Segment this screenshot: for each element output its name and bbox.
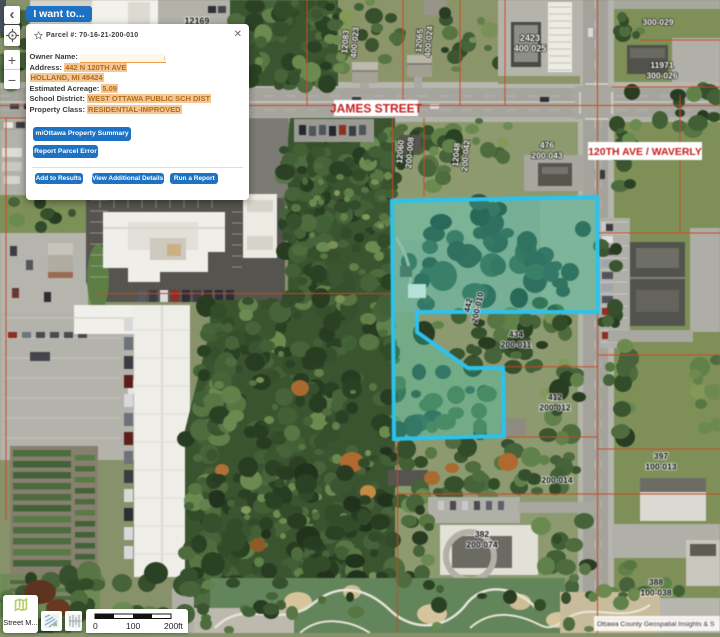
svg-text:Ottawa County Geospatial Insig: Ottawa County Geospatial Insights & S [597,621,715,628]
svg-text:412: 412 [548,392,562,402]
svg-text:11971: 11971 [650,60,673,70]
svg-text:100: 100 [126,621,140,631]
svg-text:200-011: 200-011 [501,340,532,350]
svg-text:2423: 2423 [520,33,540,43]
svg-text:200-014: 200-014 [541,475,572,485]
svg-text:200-074: 200-074 [466,540,497,550]
svg-text:300-026: 300-026 [646,71,677,81]
svg-text:400 025: 400 025 [514,44,547,54]
svg-text:100-013: 100-013 [645,462,676,472]
svg-text:476: 476 [540,140,554,150]
svg-text:200-043: 200-043 [531,151,562,161]
svg-text:120TH AVE / WAVERLY: 120TH AVE / WAVERLY [588,146,702,158]
svg-text:JAMES STREET: JAMES STREET [330,102,423,116]
svg-text:200ft: 200ft [164,621,184,631]
svg-text:200-012: 200-012 [539,403,570,413]
svg-text:100-038: 100-038 [640,588,671,598]
svg-text:397: 397 [654,451,668,461]
svg-text:388: 388 [649,577,663,587]
svg-text:0: 0 [93,621,98,631]
svg-text:300-029: 300-029 [642,17,673,27]
svg-text:434: 434 [509,329,523,339]
svg-text:382: 382 [475,529,489,539]
